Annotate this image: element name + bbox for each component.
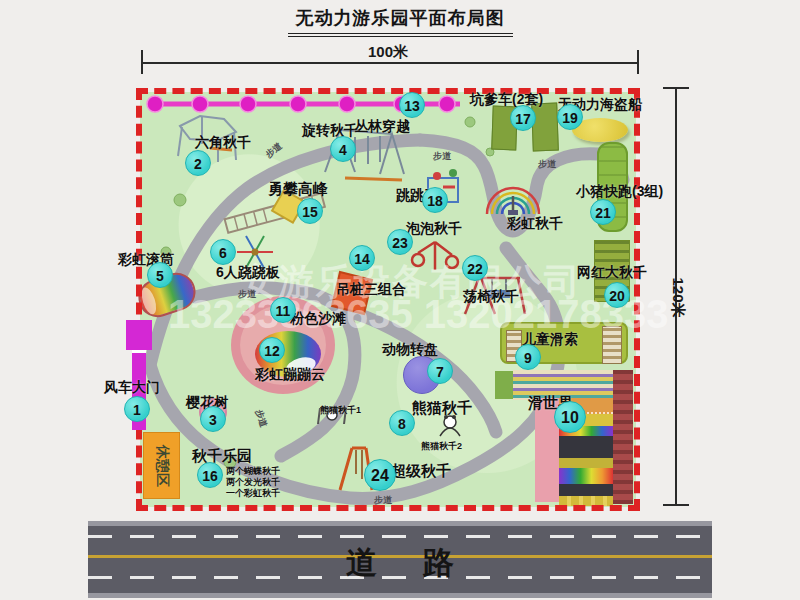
badge-16: 16 [197,462,223,488]
dimension-line-top [142,62,638,64]
badge-9: 9 [515,344,541,370]
dimension-tick-top-right [637,50,639,74]
rest-area-box: 休憩区 [143,432,180,499]
label-windmill-gate: 风车大门 [104,380,160,395]
road-lane-line-top [88,535,712,538]
label-seesaw: 6人跷跷板 [216,265,280,280]
dimension-tick-right-top [663,87,689,89]
label-pit-car: 坑爹车(2套) [470,92,543,107]
badge-15: 15 [297,198,323,224]
badge-23: 23 [387,229,413,255]
rest-area-label: 休憩区 [153,445,171,487]
badge-18: 18 [422,187,448,213]
label-panda-swing-2: 熊猫秋千2 [421,442,462,451]
badge-8: 8 [389,410,415,436]
slide-world-band-rainbow2 [559,468,613,484]
dimension-tick-right-bottom [663,504,689,506]
badge-21: 21 [590,199,616,225]
slide-world-area [495,368,633,506]
park-layout-page: 无动力游乐园平面布局图 100米 120米 [0,0,800,600]
dimension-width-label: 100米 [368,43,408,62]
badge-5: 5 [147,262,173,288]
badge-4: 4 [330,136,356,162]
slide-world-band-dark2 [559,484,613,496]
badge-20: 20 [604,282,630,308]
pit-car-track-2 [531,103,559,152]
windmill-gate-cap [126,320,152,350]
label-rotating-swing: 旋转秋千 [302,123,358,138]
badge-14: 14 [349,245,375,271]
badge-17: 17 [510,105,536,131]
trail-label-2: 步道 [433,150,451,163]
dimension-height-label: 120米 [668,276,687,320]
label-jungle-crossing: 丛林穿越 [354,119,410,134]
badge-24: 24 [364,459,396,491]
label-rainbow-cloud: 彩虹蹦蹦云 [255,367,325,382]
slide-world-band-olive [559,458,613,468]
badge-19: 19 [557,104,583,130]
badge-11: 11 [270,297,296,323]
label-swing-park: 秋千乐园 [192,448,252,464]
slide-world-band-wave [559,496,613,506]
label-chair-swing: 荡椅秋千 [463,289,519,304]
label-animal-turntable: 动物转盘 [382,342,438,357]
badge-6: 6 [210,239,236,265]
trail-label-4: 步道 [238,288,256,301]
label-panda-swing: 熊猫秋千 [412,400,472,416]
label-hexagon-swing: 六角秋千 [195,135,251,150]
label-big-swing: 网红大秋千 [577,265,647,280]
slide-world-green-pad [495,371,513,399]
label-piggy-run: 小猪快跑(3组) [576,184,663,199]
trail-label-6: 步道 [374,494,392,507]
park-map: 休憩区 [140,92,636,507]
badge-13: 13 [399,92,425,118]
page-title: 无动力游乐园平面布局图 [0,6,800,37]
label-pink-beach: 粉色沙滩 [290,311,346,326]
road: 道路 [88,521,712,598]
label-swing-park-note-1: 两个蝴蝶秋千 [226,467,280,476]
trail-label-3: 步道 [538,158,556,171]
label-swing-park-note-2: 两个发光秋千 [226,478,280,487]
label-climbing-peak: 勇攀高峰 [268,181,328,197]
badge-22: 22 [462,255,488,281]
badge-3: 3 [200,406,226,432]
badge-10: 10 [554,401,586,433]
panda-swing-icon-2 [440,415,460,436]
badge-1: 1 [124,396,150,422]
label-swing-park-note-3: 一个彩虹秋千 [226,489,280,498]
label-hanging-post-combo: 吊桩三组合 [336,282,406,297]
badge-7: 7 [427,358,453,384]
page-title-text: 无动力游乐园平面布局图 [288,6,513,37]
badge-2: 2 [185,150,211,176]
dimension-tick-top-left [141,50,143,74]
label-rainbow-swing: 彩虹秋千 [507,216,563,231]
badge-12: 12 [259,337,285,363]
road-label: 道路 [88,542,712,584]
label-bubble-swing: 泡泡秋千 [406,221,462,236]
label-super-swing: 超级秋千 [391,463,451,479]
label-panda-swing-1: 熊猫秋千1 [320,406,361,415]
slide-world-right-strip [613,370,633,504]
slide-world-band-dark1 [559,436,613,458]
